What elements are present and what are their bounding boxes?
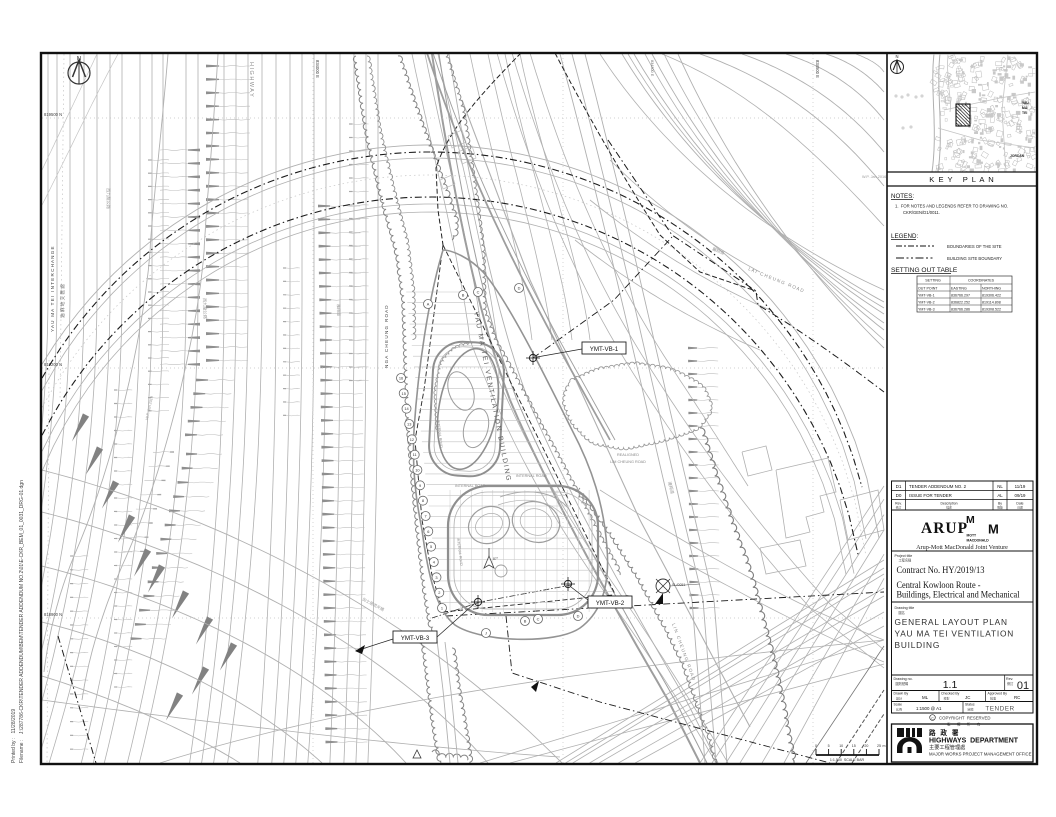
svg-text:描述: 描述	[946, 506, 952, 510]
svg-text:NOTES:: NOTES:	[891, 193, 914, 200]
svg-text:D: D	[577, 614, 580, 619]
svg-text:SETTING OUT TABLE: SETTING OUT TABLE	[891, 267, 958, 274]
svg-text:校對: 校對	[944, 696, 950, 701]
svg-text:雅翔道: 雅翔道	[336, 304, 342, 316]
svg-text:Scale: Scale	[894, 703, 903, 707]
svg-text:1:1500 @ A1: 1:1500 @ A1	[916, 706, 942, 711]
svg-text:Drawing no.: Drawing no.	[894, 677, 913, 681]
svg-text:B: B	[524, 619, 527, 624]
svg-text:09/19: 09/19	[1015, 493, 1027, 498]
svg-text:JORDAN: JORDAN	[1010, 154, 1025, 158]
svg-text:日期: 日期	[1017, 506, 1023, 510]
svg-text:836766.297: 836766.297	[951, 294, 970, 298]
svg-text:MA: MA	[1022, 106, 1028, 110]
svg-text:Printed by : 11/28/2019: Printed by : 11/28/2019	[11, 709, 17, 763]
svg-text:834000 E: 834000 E	[315, 60, 320, 78]
svg-text:INTERNAL ROAD: INTERNAL ROAD	[455, 484, 486, 488]
svg-text:Central Kowloon Route -: Central Kowloon Route -	[897, 581, 981, 591]
svg-text:B: B	[462, 293, 465, 298]
svg-text:RC: RC	[1014, 695, 1020, 700]
svg-text:N: N	[77, 57, 81, 63]
svg-text:J: J	[485, 631, 487, 636]
svg-text:16: 16	[399, 376, 403, 381]
svg-text:Rev.: Rev.	[1006, 677, 1013, 681]
svg-text:COORDINATES: COORDINATES	[968, 279, 995, 283]
svg-text:D0: D0	[896, 493, 902, 498]
svg-text:主要工程管理處: 主要工程管理處	[929, 743, 965, 751]
svg-text:REALIGNED: REALIGNED	[617, 453, 639, 457]
svg-text:NL: NL	[997, 484, 1003, 489]
svg-text:87°: 87°	[493, 557, 499, 561]
svg-text:M: M	[988, 522, 999, 537]
svg-text:COPYRIGHT RESERVED: COPYRIGHT RESERVED	[939, 716, 990, 721]
svg-text:D: D	[518, 286, 521, 291]
svg-text:Arup-Mott MacDonald Joint Vent: Arup-Mott MacDonald Joint Venture	[916, 544, 1008, 551]
svg-text:15: 15	[402, 391, 406, 396]
svg-text:YMT-VB-1: YMT-VB-1	[918, 294, 935, 298]
svg-text:836822.252: 836822.252	[951, 301, 970, 305]
svg-text:25: 25	[877, 744, 881, 748]
svg-text:Project title: Project title	[895, 554, 913, 558]
svg-text:ML: ML	[922, 695, 929, 700]
svg-text:設計: 設計	[896, 696, 902, 701]
svg-text:簡簽: 簡簽	[997, 506, 1003, 510]
svg-text:N G A C H E U N G R O A D: N G A C H E U N G R O A D	[384, 305, 389, 368]
svg-text:CKR/GEN/D1/0011.: CKR/GEN/D1/0011.	[903, 210, 940, 215]
svg-text:M: M	[966, 514, 975, 526]
svg-text:20: 20	[864, 744, 868, 748]
svg-text:836766.286: 836766.286	[951, 308, 970, 312]
svg-text:0: 0	[815, 744, 817, 748]
svg-text:TENDER ADDENDUM NO. 2: TENDER ADDENDUM NO. 2	[909, 484, 967, 489]
svg-text:819308.522: 819308.522	[982, 308, 1001, 312]
svg-text:YAU MA TEI VENTILATION: YAU MA TEI VENTILATION	[895, 629, 1015, 639]
svg-text:TEI: TEI	[1022, 111, 1027, 115]
svg-text:EASTING: EASTING	[951, 287, 967, 291]
svg-text:819500 N: 819500 N	[44, 112, 62, 117]
svg-text:MACDONALD: MACDONALD	[967, 539, 990, 543]
svg-text:834500 E: 834500 E	[815, 60, 820, 78]
svg-text:Filename : J:\287786-CKR\TE: Filename : J:\287786-CKR\TENDER ADDENDUM…	[19, 480, 25, 763]
svg-text:819200 N: 819200 N	[44, 362, 62, 367]
svg-text:Y A U M A T E I I N T E: Y A U M A T E I I N T E R C H A N G E	[50, 246, 55, 332]
svg-text:11/19: 11/19	[1015, 484, 1026, 489]
svg-text:批准: 批准	[990, 696, 996, 701]
svg-text:C: C	[537, 617, 540, 622]
svg-text:1:1,500 SCALE BAR: 1:1,500 SCALE BAR	[830, 758, 865, 762]
svg-text:比例: 比例	[896, 707, 902, 712]
svg-text:Contract No. HY/2019/13: Contract No. HY/2019/13	[897, 566, 985, 576]
svg-text:15: 15	[852, 744, 856, 748]
svg-text:W.P. Jan 2016: W.P. Jan 2016	[862, 175, 886, 179]
svg-text:819114.808: 819114.808	[982, 301, 1001, 305]
svg-text:ISSUE FOR TENDER: ISSUE FOR TENDER	[909, 493, 952, 498]
svg-text:1: 1	[441, 606, 443, 611]
svg-text:818900 N: 818900 N	[44, 612, 62, 617]
svg-text:ARUP: ARUP	[921, 520, 968, 537]
svg-text:834300 E: 834300 E	[650, 60, 654, 77]
svg-text:JC: JC	[965, 695, 970, 700]
svg-text:修訂: 修訂	[896, 506, 902, 510]
svg-text:TENDER: TENDER	[985, 706, 1014, 713]
svg-text:12: 12	[410, 437, 414, 442]
svg-text:Drawing title: Drawing title	[895, 606, 915, 610]
svg-text:8: 8	[422, 498, 424, 503]
svg-text:YMT-VB-3: YMT-VB-3	[918, 308, 935, 312]
svg-text:Status: Status	[965, 703, 975, 707]
svg-text:INTERNAL ROAD: INTERNAL ROAD	[516, 474, 547, 478]
svg-text:西九龍公路: 西九龍公路	[105, 188, 112, 210]
svg-text:HIGHWAYS DEPARTMENT: HIGHWAYS DEPARTMENT	[929, 736, 1019, 745]
svg-text:D1: D1	[896, 484, 902, 489]
svg-text:K E Y P L A N: K E Y P L A N	[929, 175, 994, 184]
svg-text:OUT POINT: OUT POINT	[918, 287, 938, 291]
svg-text:MAJOR WORKS PROJECT MANAGEMENT: MAJOR WORKS PROJECT MANAGEMENT OFFICE	[929, 752, 1032, 757]
svg-text:2: 2	[438, 590, 440, 595]
svg-text:1.1: 1.1	[943, 679, 958, 691]
svg-text:13: 13	[407, 422, 411, 427]
svg-text:修訂: 修訂	[1007, 681, 1014, 686]
svg-text:5: 5	[828, 744, 830, 748]
svg-text:m: m	[883, 744, 886, 748]
svg-text:Drawn By: Drawn By	[894, 692, 909, 696]
svg-text:SETTING: SETTING	[925, 279, 941, 283]
svg-text:N: N	[895, 54, 898, 59]
svg-text:圖名: 圖名	[899, 610, 905, 615]
svg-text:10: 10	[839, 744, 843, 748]
svg-text:BUILDING SITE BOUNDARY: BUILDING SITE BOUNDARY	[947, 256, 1002, 261]
svg-text:5: 5	[430, 544, 432, 549]
svg-text:6: 6	[427, 529, 429, 534]
svg-text:YAU: YAU	[1022, 101, 1029, 105]
svg-text:油 麻 地 交 匯 處: 油 麻 地 交 匯 處	[59, 284, 66, 318]
svg-text:7: 7	[425, 514, 427, 519]
svg-text:GENERAL LAYOUT PLAN: GENERAL LAYOUT PLAN	[895, 617, 1008, 627]
svg-text:YMT-VB-3: YMT-VB-3	[401, 635, 430, 642]
svg-text:BOUNDARIES OF THE SITE: BOUNDARIES OF THE SITE	[947, 244, 1002, 249]
svg-text:YMT-VB-1: YMT-VB-1	[590, 346, 619, 353]
svg-text:LEGEND:: LEGEND:	[891, 233, 918, 240]
svg-text:BUILDING: BUILDING	[895, 640, 941, 650]
svg-text:Checked By: Checked By	[941, 692, 960, 696]
svg-text:Buildings, Electrical and Mech: Buildings, Electrical and Mechanical	[897, 591, 1020, 601]
svg-text:Approved By: Approved By	[988, 692, 1008, 696]
svg-text:YMT-VB-2: YMT-VB-2	[596, 600, 625, 607]
svg-text:MOTT: MOTT	[967, 534, 978, 538]
svg-text:圖則號碼: 圖則號碼	[896, 681, 909, 686]
svg-text:AL: AL	[997, 493, 1003, 498]
svg-text:819306.422: 819306.422	[982, 294, 1001, 298]
svg-text:A: A	[427, 302, 430, 307]
svg-text:LIM CHEUNG ROAD: LIM CHEUNG ROAD	[610, 460, 646, 464]
svg-text:NORTHING: NORTHING	[982, 287, 1001, 291]
svg-text:3: 3	[435, 575, 437, 580]
svg-text:H I G H W A Y: H I G H W A Y	[248, 62, 254, 97]
svg-text:工程名稱: 工程名稱	[899, 558, 913, 563]
svg-text:YMT-VB-2: YMT-VB-2	[918, 301, 935, 305]
svg-text:9: 9	[419, 483, 421, 488]
svg-text:C: C	[477, 290, 480, 295]
svg-text:1. FOR NOTES AND LEGENDS REFE: 1. FOR NOTES AND LEGENDS REFER TO DRAWIN…	[895, 204, 1008, 209]
svg-text:11: 11	[413, 452, 417, 457]
svg-text:狀態: 狀態	[968, 707, 974, 712]
